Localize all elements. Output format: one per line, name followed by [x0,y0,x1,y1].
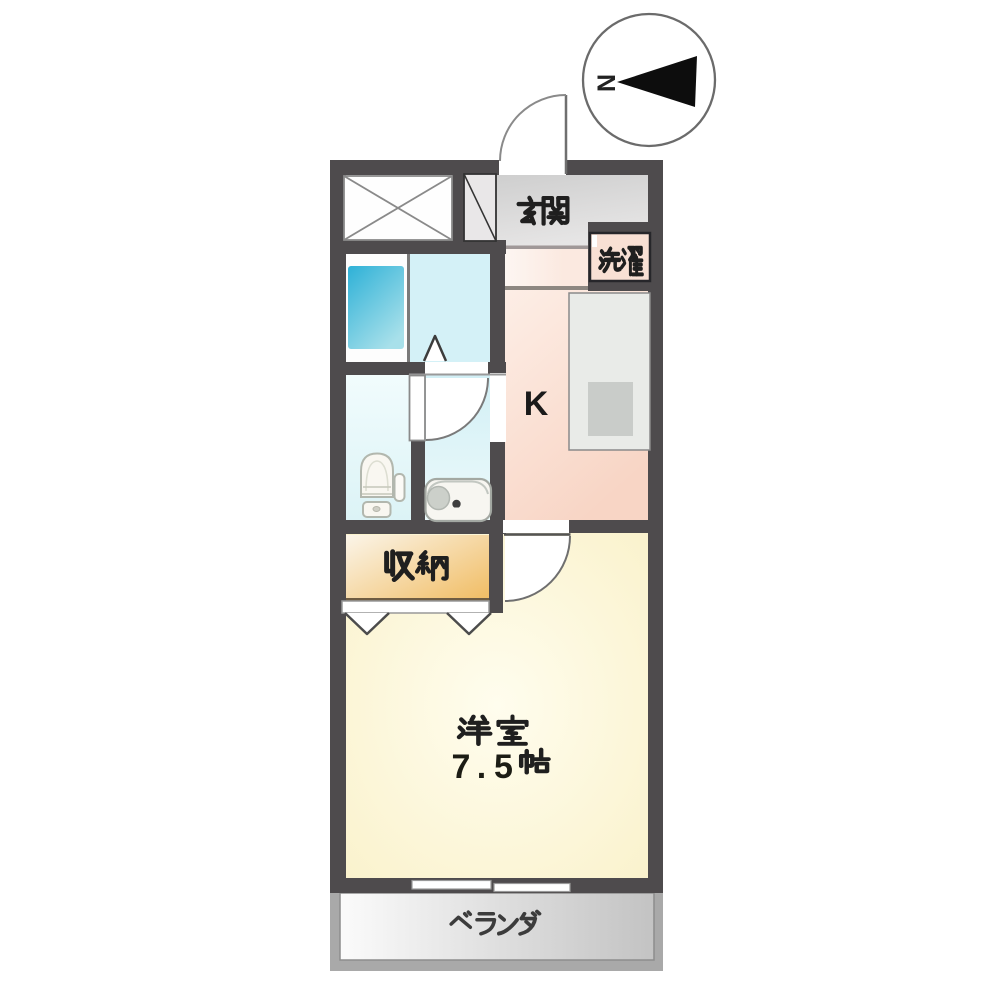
svg-text:7: 7 [452,748,471,786]
svg-text:K: K [524,385,549,423]
svg-text:5: 5 [494,748,513,786]
svg-text:.: . [477,748,486,786]
svg-text:N: N [593,74,621,92]
